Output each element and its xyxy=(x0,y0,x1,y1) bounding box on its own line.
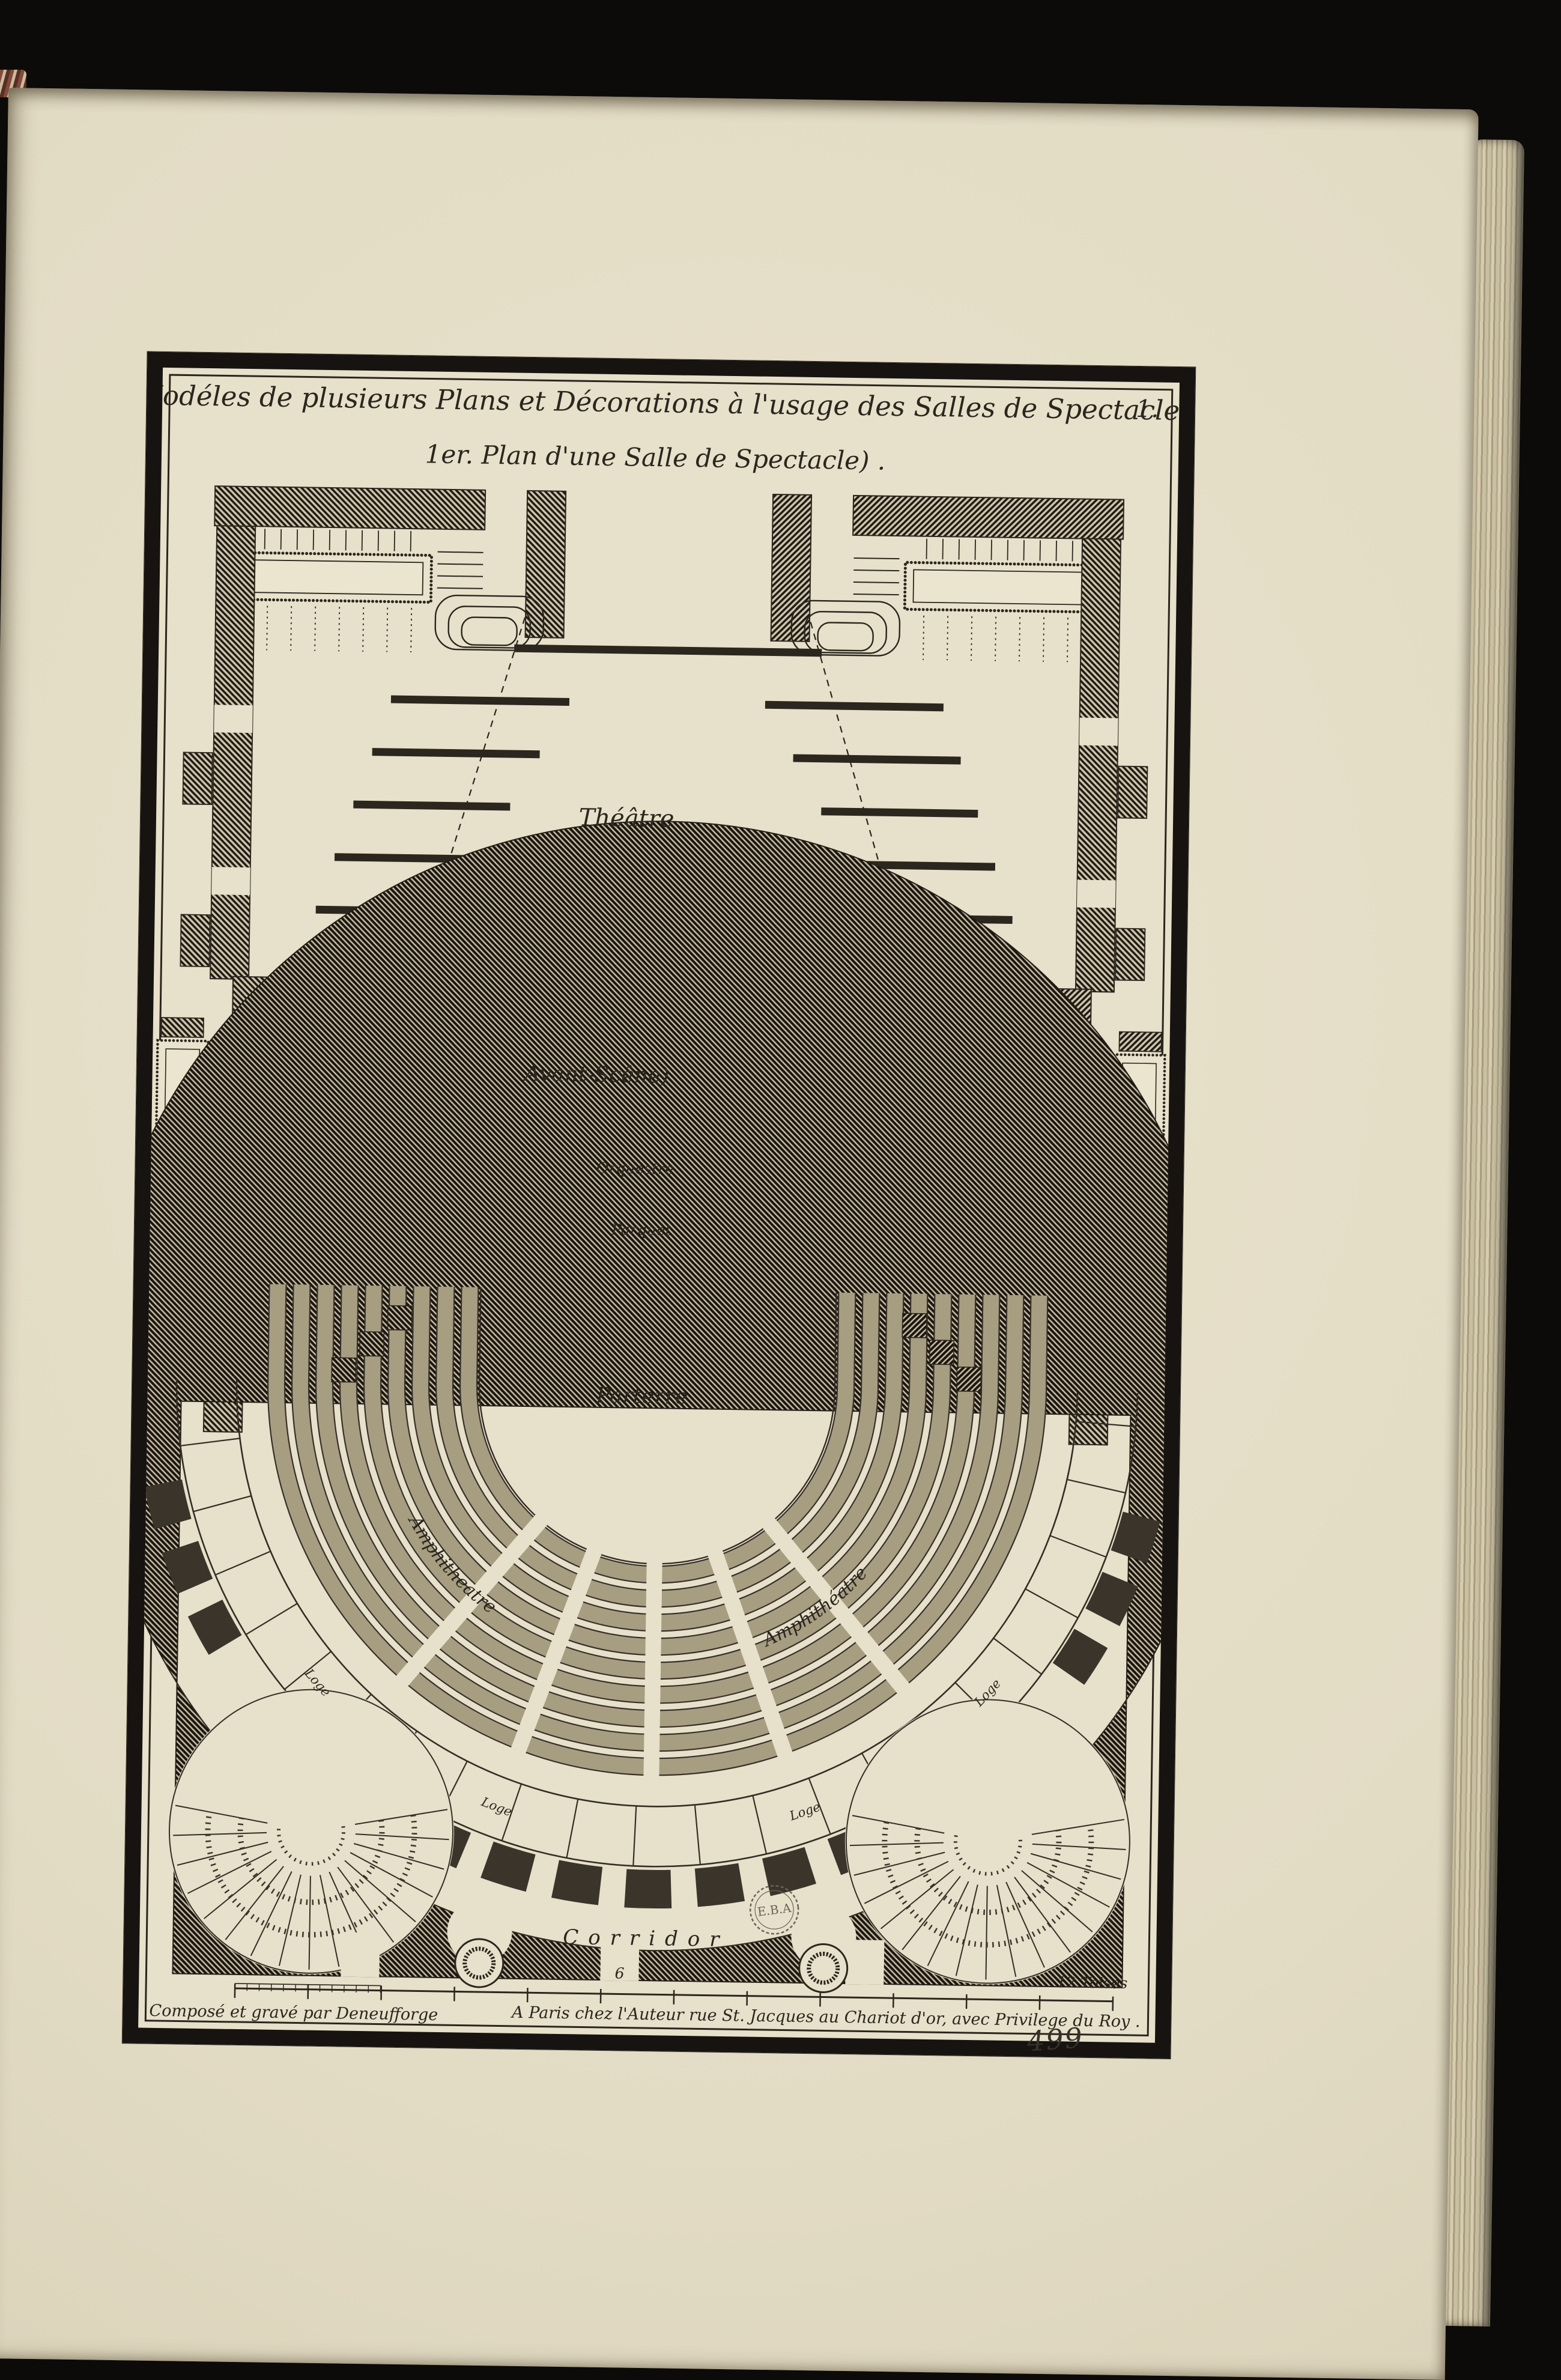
stair-treads xyxy=(437,552,483,589)
stamp-text: E.B.A xyxy=(757,1901,793,1919)
corner-room-top-right xyxy=(771,494,1124,663)
label-loge: Loge xyxy=(787,1799,822,1823)
label-loge: Loge xyxy=(479,1794,514,1819)
label-avant-scene: Avant-Scêne) xyxy=(523,1061,669,1088)
label-orchestre: Orquestre xyxy=(596,1159,674,1178)
scale-end-label: 12 Toises xyxy=(1056,1973,1127,1992)
handwritten-page-number: 499 xyxy=(1026,2021,1084,2058)
engraved-plate: Modéles de plusieurs Plans et Décoration… xyxy=(123,351,1196,2059)
label-parterre: Parterre xyxy=(595,1383,688,1409)
plate-title-line1: Modéles de plusieurs Plans et Décoration… xyxy=(138,379,1180,427)
book-page: Modéles de plusieurs Plans et Décoration… xyxy=(0,88,1479,2380)
plate-title-line2: 1er. Plan d'une Salle de Spectacle) . xyxy=(425,439,885,475)
label-theatre: Théâtre xyxy=(578,804,674,833)
corner-room-top-left xyxy=(213,486,566,655)
scale-mid-label: 6 xyxy=(614,1964,624,1982)
label-parquet: Parquet xyxy=(611,1221,672,1239)
label-corridor: Corridor xyxy=(563,1925,729,1952)
plate-number: 1. xyxy=(1136,395,1159,423)
scanned-book-photo: Modéles de plusieurs Plans et Décoration… xyxy=(0,0,1561,2318)
